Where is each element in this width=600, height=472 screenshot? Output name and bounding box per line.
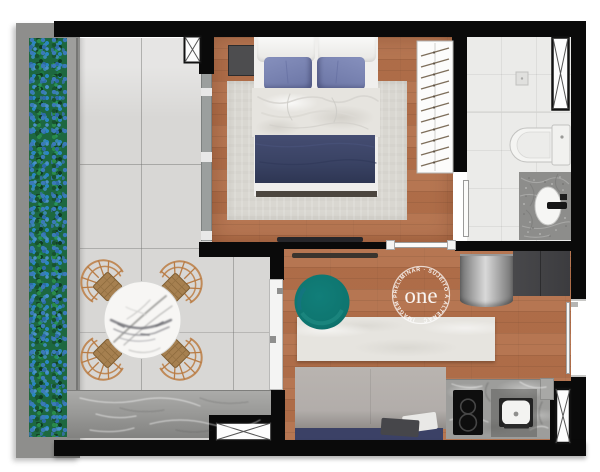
svg-text:one: one [404,283,437,308]
svg-text:IMAGEM PRELIMINAR · SUJEITO A: IMAGEM PRELIMINAR · SUJEITO A ALTERAÇÕES… [0,0,449,323]
